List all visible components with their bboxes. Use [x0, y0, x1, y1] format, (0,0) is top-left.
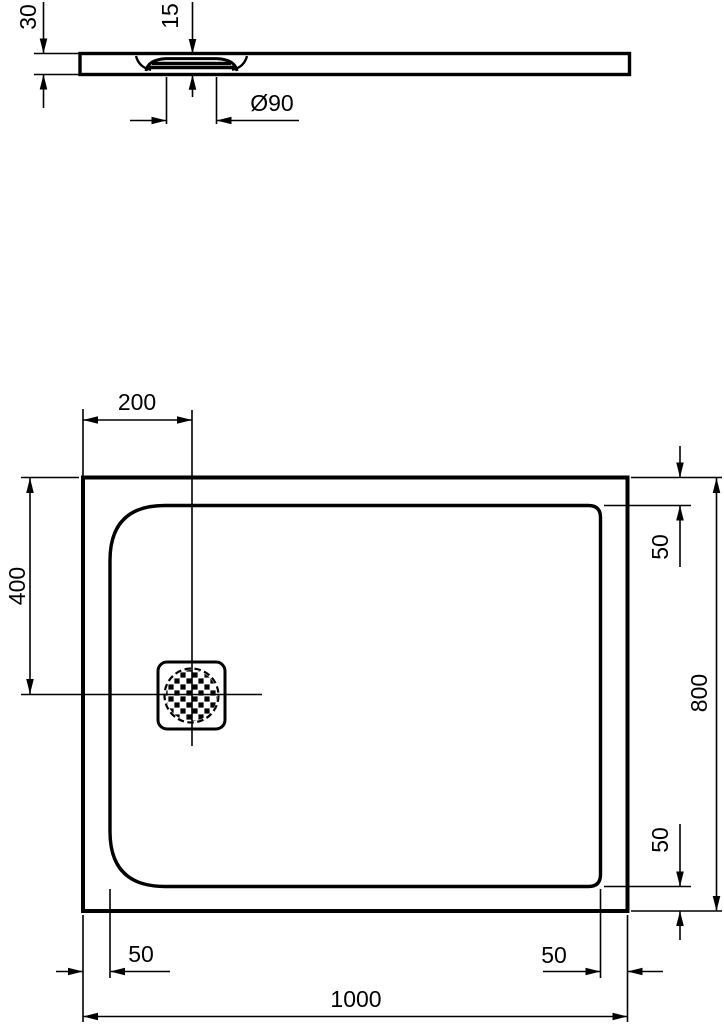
drain-grate	[158, 662, 225, 729]
dim-label-200: 200	[118, 389, 156, 415]
dimension-200: 200	[83, 389, 192, 476]
arrow-up-icon	[676, 506, 684, 521]
arrow-down-icon	[26, 679, 34, 694]
dim-label-50-bottom-right-vertical: 50	[647, 827, 673, 853]
dimension-1000: 1000	[83, 986, 628, 1020]
arrow-left-icon	[83, 416, 98, 424]
technical-drawing: 30 15 Ø90	[0, 0, 724, 1024]
arrow-right-icon	[613, 1013, 628, 1021]
drain-waste-section	[136, 56, 247, 71]
arrow-up-icon	[189, 75, 197, 90]
drawing-sheet: 30 15 Ø90	[0, 0, 724, 1024]
dim-label-50-bottom-right: 50	[541, 942, 567, 968]
arrow-down-icon	[40, 39, 48, 54]
dimension-50-bottom-right-vertical: 50	[604, 824, 722, 940]
arrow-right-icon	[177, 416, 192, 424]
arrow-left-icon	[110, 968, 125, 976]
dimension-50-bottom-left: 50	[56, 889, 170, 1022]
arrow-up-icon	[713, 478, 721, 493]
plan-view: 200 400 50 800	[4, 389, 722, 1022]
dimension-15: 15	[157, 2, 196, 97]
arrow-left-icon	[83, 1013, 98, 1021]
dimension-50-top-right: 50	[604, 446, 722, 567]
arrow-up-icon	[26, 478, 34, 493]
dim-label-diameter-90: Ø90	[250, 90, 293, 116]
side-view: 30 15 Ø90	[15, 2, 630, 124]
arrow-down-icon	[713, 896, 721, 911]
dimension-diameter-90: Ø90	[130, 77, 299, 124]
drain-grate-pattern	[166, 670, 217, 721]
dim-label-50-bottom-left: 50	[128, 941, 154, 967]
arrow-right-icon	[152, 117, 167, 125]
arrow-left-icon	[217, 117, 232, 125]
arrow-down-icon	[676, 463, 684, 478]
dim-label-800: 800	[686, 674, 712, 712]
dimension-30: 30	[15, 2, 79, 108]
dim-label-400: 400	[4, 567, 30, 605]
arrow-left-icon	[628, 968, 643, 976]
dimension-800: 800	[686, 478, 720, 911]
arrow-down-icon	[189, 39, 197, 54]
dim-label-30: 30	[15, 4, 41, 30]
dim-label-1000: 1000	[330, 986, 381, 1012]
arrow-up-icon	[676, 911, 684, 926]
arrow-right-icon	[586, 968, 601, 976]
dim-label-50-top-right: 50	[647, 534, 673, 560]
dim-label-15: 15	[157, 3, 183, 29]
dimension-50-bottom-right: 50	[541, 889, 663, 1022]
arrow-down-icon	[676, 872, 684, 887]
arrow-up-icon	[40, 75, 48, 90]
arrow-right-icon	[68, 968, 83, 976]
dimension-400: 400	[4, 478, 79, 695]
